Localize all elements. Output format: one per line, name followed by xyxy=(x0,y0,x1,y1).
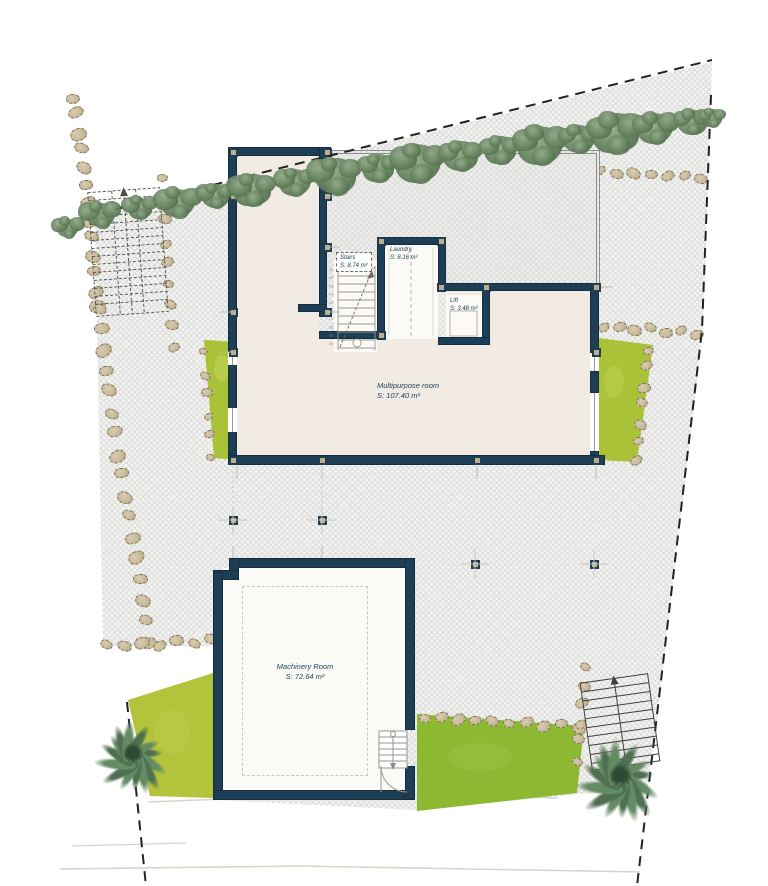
room-label-stairs: Stairs S: 8.74 m² xyxy=(336,252,372,272)
tree xyxy=(59,216,70,226)
tree xyxy=(95,217,109,229)
tree xyxy=(372,169,388,183)
tree xyxy=(327,177,349,195)
outdoor-stair-east-arrow xyxy=(609,675,618,685)
stair-step-number: 19 xyxy=(329,333,334,338)
palm-tree xyxy=(93,713,173,793)
room-area: S: 3.48 m² xyxy=(450,305,478,313)
palm-trunk xyxy=(123,743,143,763)
stair-step-number: 17 xyxy=(329,316,334,321)
palm-tree xyxy=(574,729,666,821)
floor-plan: Stairs S: 8.74 m² Laundry S: 8.16 m² Lif… xyxy=(0,0,768,886)
tree xyxy=(367,154,380,165)
lift-car xyxy=(450,311,477,336)
tree xyxy=(454,157,472,172)
room-label-laundry: Laundry S: 8.16 m² xyxy=(390,246,418,262)
tree xyxy=(284,168,296,178)
outdoor-stair-west-arrow xyxy=(119,187,128,197)
stair-step-number: 12 xyxy=(329,275,334,280)
tree xyxy=(321,157,338,171)
room-label-machinery: Machinery Room S: 72.64 m² xyxy=(240,662,370,682)
room-area: S: 8.74 m² xyxy=(340,262,368,270)
room-name: Machinery Room xyxy=(240,662,370,672)
room-name: Laundry xyxy=(390,246,418,254)
tree xyxy=(494,151,510,165)
stair-step-number: 13 xyxy=(329,283,334,288)
stair-step-number: 11 xyxy=(329,267,334,272)
stair-step-number: 18 xyxy=(329,324,334,329)
tree xyxy=(572,140,588,154)
column-centerline-crosses xyxy=(219,466,608,578)
room-name: Stairs xyxy=(340,254,368,262)
machinery-stair xyxy=(379,731,407,768)
palm-trunk xyxy=(609,764,632,787)
stair-step-number: 14 xyxy=(329,292,334,297)
door-swing-arc xyxy=(381,766,407,792)
tree xyxy=(642,111,659,125)
room-area: S: 72.64 m² xyxy=(240,672,370,682)
tree xyxy=(402,143,421,159)
tree xyxy=(709,119,719,128)
stair-step-number: 15 xyxy=(329,300,334,305)
room-name: Multipurpose room xyxy=(377,381,439,391)
room-label-lift: Lift S: 3.48 m² xyxy=(450,297,478,313)
room-area: S: 8.16 m² xyxy=(390,254,418,262)
tree xyxy=(102,201,122,218)
tree xyxy=(607,135,631,155)
stair-step-numbers: 11121314151617181920 xyxy=(329,267,334,346)
tree xyxy=(681,108,695,120)
tree xyxy=(649,129,667,144)
tree xyxy=(448,140,462,152)
stair-step-number: 20 xyxy=(329,341,334,346)
tree xyxy=(205,183,217,193)
tree xyxy=(524,124,544,141)
room-area: S: 107.40 m² xyxy=(377,391,439,401)
room-label-multipurpose: Multipurpose room S: 107.40 m² xyxy=(377,381,439,401)
room-name: Lift xyxy=(450,297,478,305)
tree xyxy=(566,124,580,136)
